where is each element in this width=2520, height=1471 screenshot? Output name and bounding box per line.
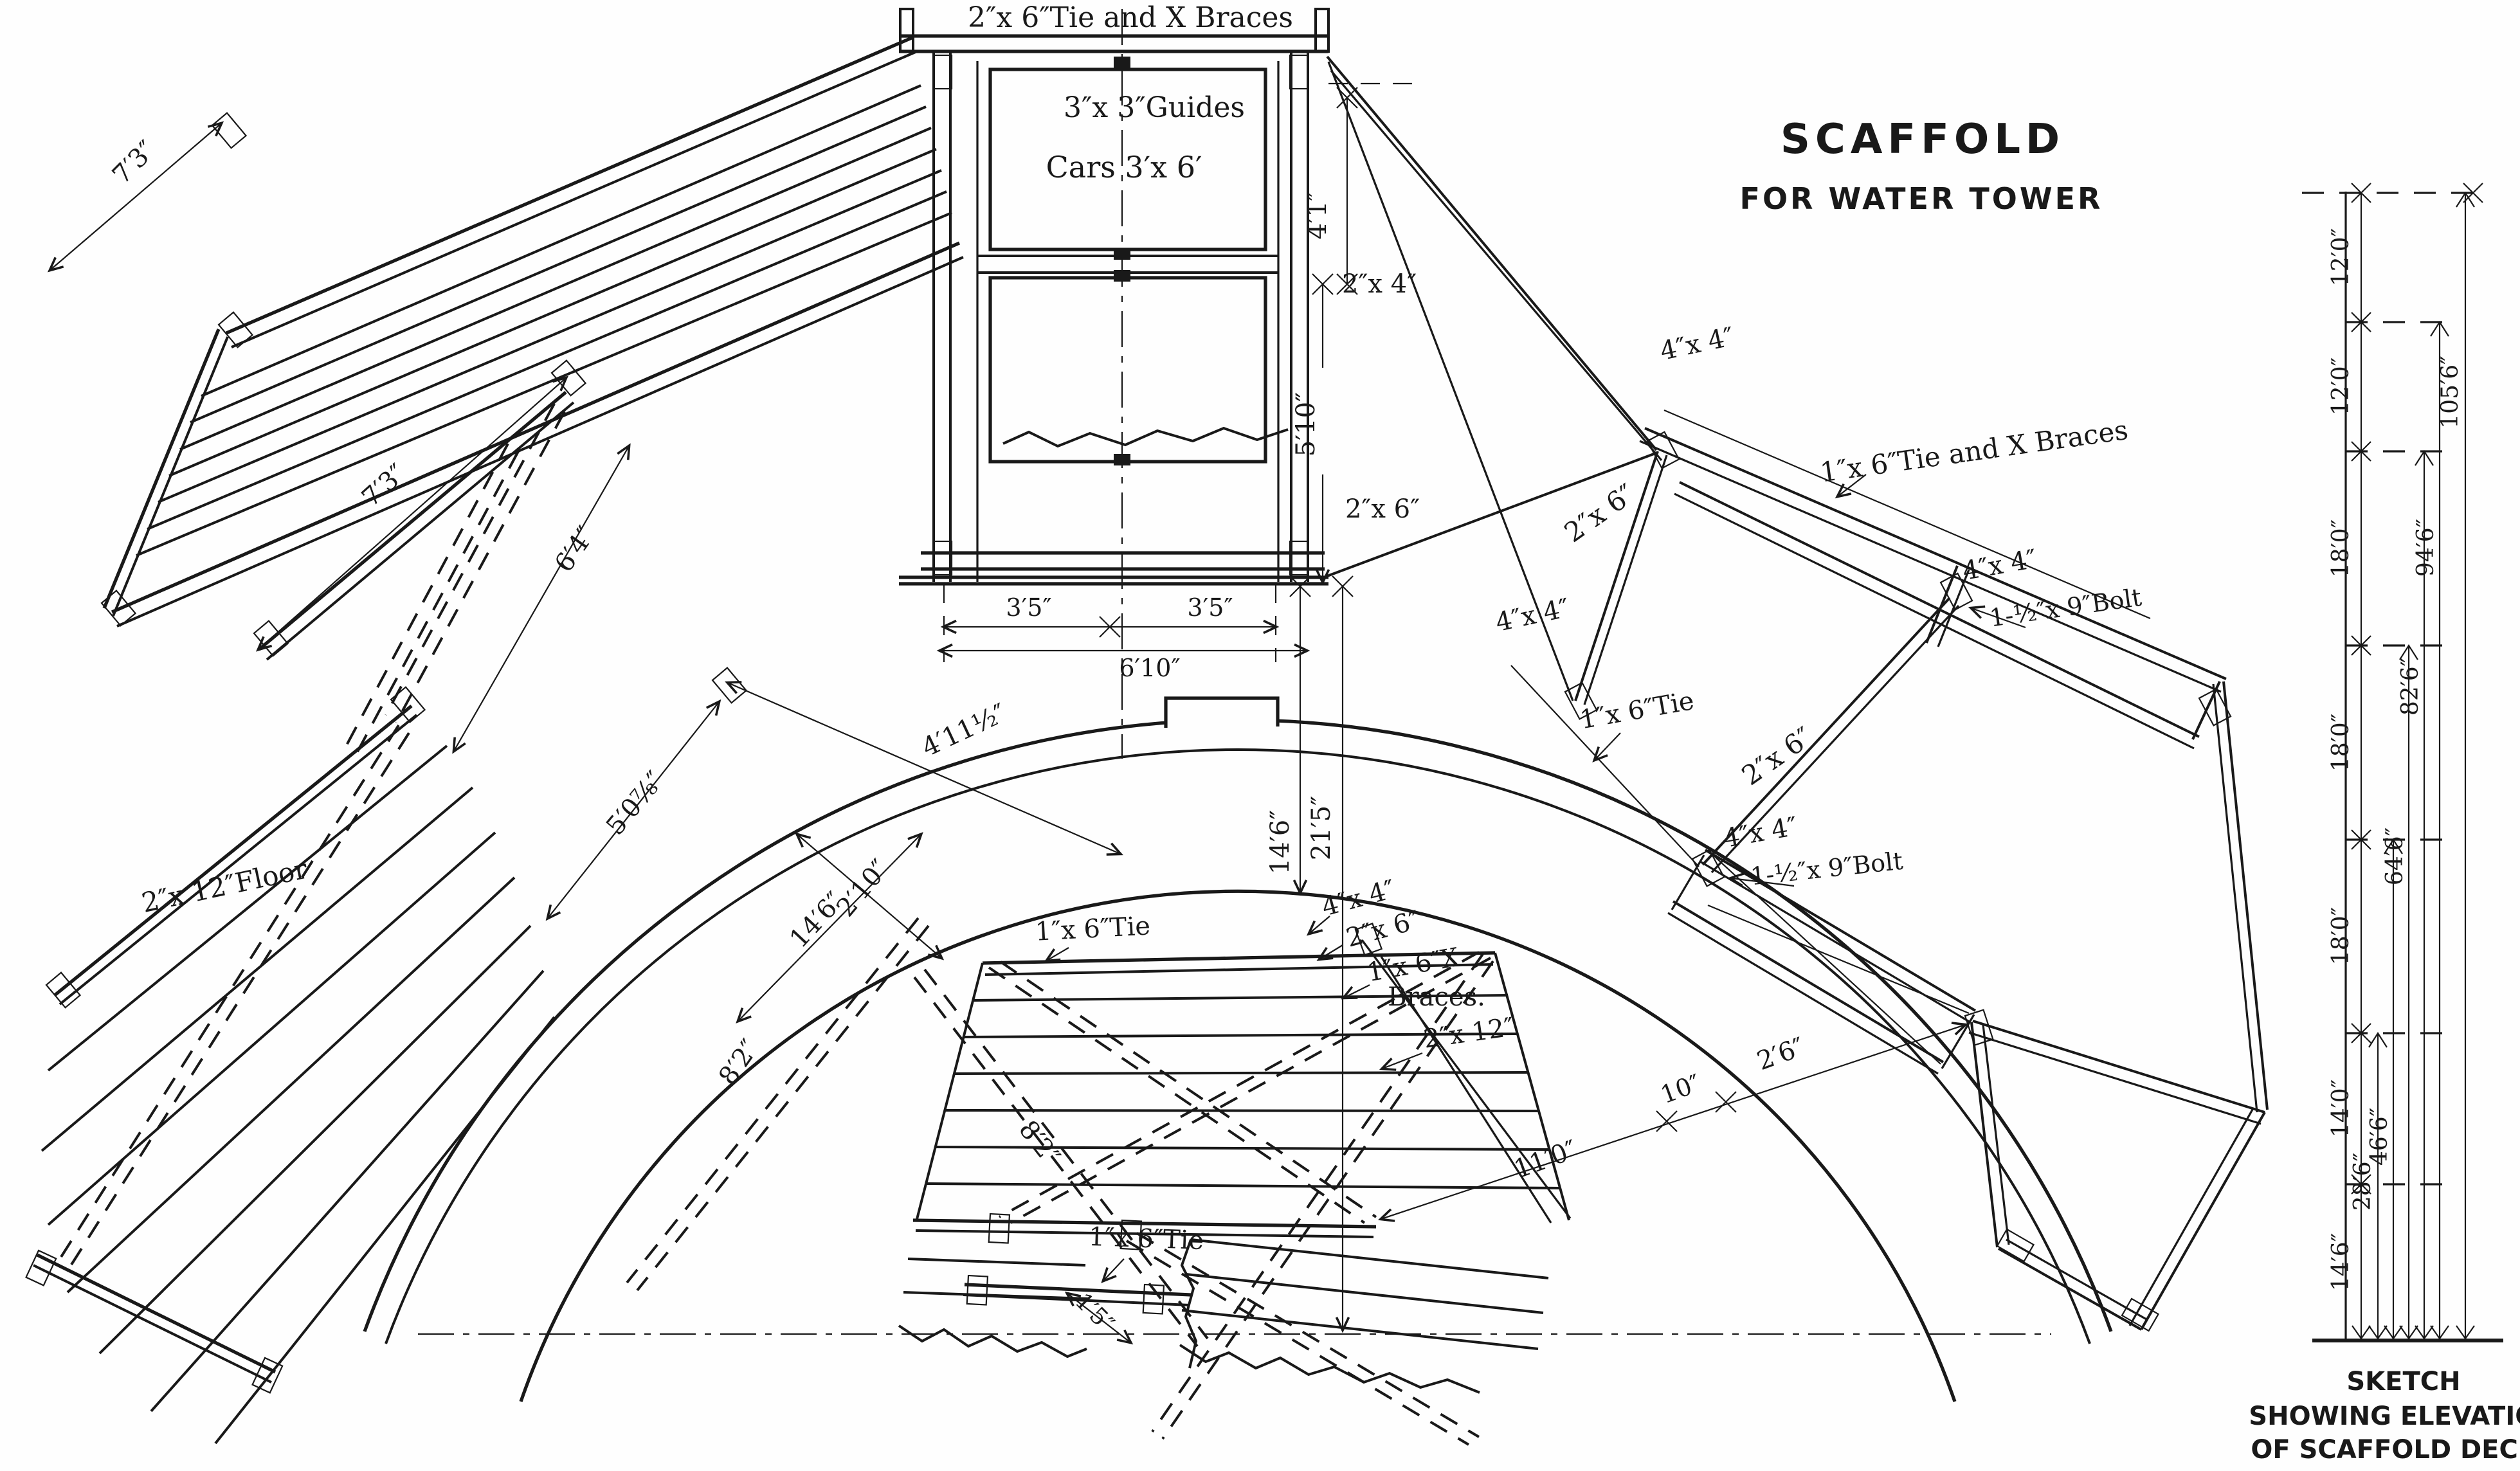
dim-label-14-6-v: 14′6″	[1265, 810, 1295, 874]
dim-label-4-1: 4′1″	[1303, 192, 1332, 240]
left-deck	[33, 706, 554, 1443]
elev-seg-18-0-c: 18′0″	[2328, 907, 2354, 965]
elevation-caption-1: SKETCH	[2346, 1367, 2460, 1396]
label-shaft-tie: 2″x 6″Tie and X Braces	[968, 1, 1293, 34]
part-label-right-4x4-low: 4″x 4″	[1721, 811, 1800, 853]
dim-label-5-10: 5′10″	[1291, 392, 1321, 456]
part-label-mid-x-braces-2: Braces.	[1388, 982, 1485, 1012]
elev-cum-82-6: 82′6″	[2397, 658, 2424, 716]
wall-notch-mask	[1166, 681, 1278, 743]
dim-label-5-0: 5′0⅞″	[601, 766, 670, 841]
part-label-bolt-low: 1-½″x 9″Bolt	[1749, 847, 1904, 891]
label-guides: 3″x 3″Guides	[1064, 91, 1245, 124]
part-label-right-4x4-right: 4″x 4″	[1961, 544, 2039, 586]
dim-label-3-5-left: 3′5″	[1006, 593, 1051, 622]
tower-wall-arcs	[365, 681, 2111, 1402]
break-line	[1003, 428, 1288, 446]
dim-label-2-10: 2′10″	[831, 854, 895, 922]
part-label-2x4: 2″x 4″	[1342, 269, 1417, 299]
drawing-title: SCAFFOLD	[1781, 116, 2065, 163]
part-label-mid-2x12: 2″x 12″	[1422, 1013, 1516, 1054]
part-label-right-4x4-top: 4″x 4″	[1658, 322, 1737, 366]
part-label-floor-2x12: 2″x 12″Floor	[139, 853, 311, 919]
elev-seg-12-0-b: 12′0″	[2328, 357, 2354, 415]
elev-seg-18-0-b: 18′0″	[2328, 714, 2354, 772]
dim-label-21-5: 21′5″	[1307, 796, 1336, 860]
drawing-subtitle: FOR WATER TOWER	[1740, 181, 2103, 216]
part-label-right-tie-braces: 1″x 6″Tie and X Braces	[1818, 414, 2130, 489]
scaffold-plan-sheet: SCAFFOLD FOR WATER TOWER 2″x 6″Tie and X…	[0, 0, 2520, 1471]
dim-label-3-5-right: 3′5″	[1187, 593, 1233, 622]
elevation-caption-2: SHOWING ELEVATION	[2249, 1402, 2520, 1431]
part-label-tie-bottom: 1″x 6″Tie	[1088, 1222, 1204, 1256]
elevation-caption-3: OF SCAFFOLD DECKS	[2251, 1435, 2520, 1465]
elev-cum-64-6: 64′6″	[2382, 827, 2408, 885]
elev-seg-14-0: 14′0″	[2328, 1079, 2354, 1137]
dim-label-7-3: 7′3″	[356, 458, 412, 512]
scaffold-plan-drawing: SCAFFOLD FOR WATER TOWER 2″x 6″Tie and X…	[0, 0, 2520, 1471]
dim-label-11-0: 11′0″	[1510, 1135, 1581, 1185]
dim-label-2-6: 2′6″	[1753, 1032, 1808, 1076]
part-label-2x6-shaft: 2″x 6″	[1345, 494, 1420, 524]
part-label-right-4x4-left: 4″x 4″	[1493, 593, 1572, 638]
elev-cum-105-6: 105′6″	[2437, 356, 2463, 428]
dim-label-10: 10″	[1657, 1069, 1705, 1109]
part-label-tie-mid: 1″x 6″Tie	[1035, 911, 1151, 946]
elev-cum-46-6: 46′6″	[2366, 1108, 2393, 1166]
elev-seg-18-0-a: 18′0″	[2328, 519, 2354, 577]
label-cars: Cars 3′x 6′	[1046, 150, 1202, 185]
dim-label-6-4: 6′4″	[549, 521, 601, 578]
elev-seg-12-0-a: 12′0″	[2328, 228, 2354, 286]
elev-cum-94-6: 94′6″	[2413, 519, 2439, 577]
dim-label-6-10: 6′10″	[1119, 654, 1180, 682]
dim-label-1-5: 1′5″	[1070, 1288, 1119, 1338]
text-layer: SCAFFOLD FOR WATER TOWER 2″x 6″Tie and X…	[107, 1, 2520, 1465]
part-label-right-tie: 1″x 6″Tie	[1578, 686, 1696, 735]
elev-seg-14-6: 14′6″	[2328, 1233, 2354, 1291]
part-label-right-2x6-low: 2″x 6″	[1736, 721, 1818, 791]
